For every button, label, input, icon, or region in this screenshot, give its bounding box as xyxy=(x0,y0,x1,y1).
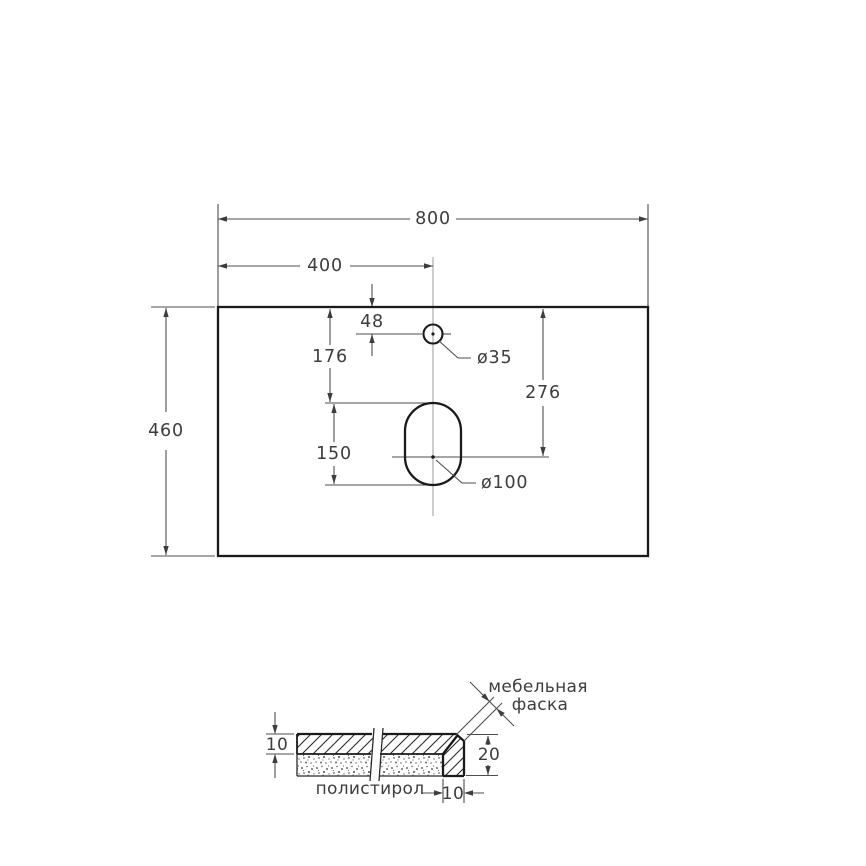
dim-label-edge-height: 20 xyxy=(478,745,500,765)
arrowhead xyxy=(639,216,648,221)
technical-drawing-page: 800 400 48 176 150 xyxy=(0,0,866,866)
dimension-edge-20: 20 xyxy=(466,735,500,776)
dimension-slab-10: 10 xyxy=(266,712,294,778)
arrowhead xyxy=(331,475,336,484)
dimension-276: 276 xyxy=(525,309,561,456)
faucet-hole-center xyxy=(431,332,434,335)
arrowhead xyxy=(272,725,277,734)
dim-label-176: 176 xyxy=(312,347,348,367)
chamfer-callout: мебельная фаска xyxy=(456,677,588,741)
arrowhead xyxy=(218,263,227,268)
arrowhead xyxy=(464,790,473,795)
arrowhead xyxy=(218,216,227,221)
extension-lines xyxy=(151,204,648,556)
arrowhead xyxy=(485,766,490,775)
polystyrene-layer-left xyxy=(297,754,371,776)
dim-label-slot-length: 150 xyxy=(316,444,352,464)
drain-diameter-label: ø100 xyxy=(481,473,528,493)
dim-label-depth: 460 xyxy=(148,421,184,441)
dim-label-width: 800 xyxy=(415,209,451,229)
arrowhead xyxy=(163,308,168,317)
chamfer-label-line1: мебельная xyxy=(488,677,588,697)
dim-label-edge-width: 10 xyxy=(442,784,464,804)
dimension-faucet-48: 48 xyxy=(360,284,384,356)
dim-label-slab-thickness: 10 xyxy=(266,735,288,755)
arrowhead xyxy=(540,309,545,318)
arrowhead xyxy=(272,754,277,763)
polystyrene-layer-right xyxy=(379,754,443,776)
slab-hatch-left xyxy=(297,734,373,754)
section-view: мебельная фаска 10 20 10 поли xyxy=(266,677,588,804)
arrowhead xyxy=(327,393,332,402)
arrowhead xyxy=(424,263,433,268)
dimension-center-400: 400 xyxy=(218,256,433,276)
drain-slot-center xyxy=(431,455,435,459)
dim-label-faucet-offset: 48 xyxy=(360,312,384,332)
dimension-slot-150: 150 xyxy=(316,404,352,484)
dimension-edge-width-10: 10 xyxy=(421,779,484,804)
faucet-hole: ø35 xyxy=(424,325,513,369)
plan-view: 800 400 48 176 150 xyxy=(148,204,648,556)
arrowhead xyxy=(331,404,336,413)
chamfer-label-line2: фаска xyxy=(512,695,568,715)
arrowhead xyxy=(327,309,332,318)
dim-label-276: 276 xyxy=(525,383,561,403)
arrowhead xyxy=(540,447,545,456)
arrowhead xyxy=(485,736,490,745)
dim-label-center: 400 xyxy=(307,256,343,276)
countertop-drawing: 800 400 48 176 150 xyxy=(0,0,866,866)
arrowhead xyxy=(369,298,374,307)
faucet-diameter-label: ø35 xyxy=(477,348,512,368)
polystyrene-label: полистирол xyxy=(316,779,425,799)
dimension-176: 176 xyxy=(312,309,348,402)
dimension-width-800: 800 xyxy=(218,209,648,229)
faucet-leader-line xyxy=(439,341,471,358)
drain-slot: ø100 xyxy=(405,403,528,493)
arrowhead xyxy=(163,546,168,555)
dimension-depth-460: 460 xyxy=(148,308,184,555)
arrowhead xyxy=(369,334,374,343)
